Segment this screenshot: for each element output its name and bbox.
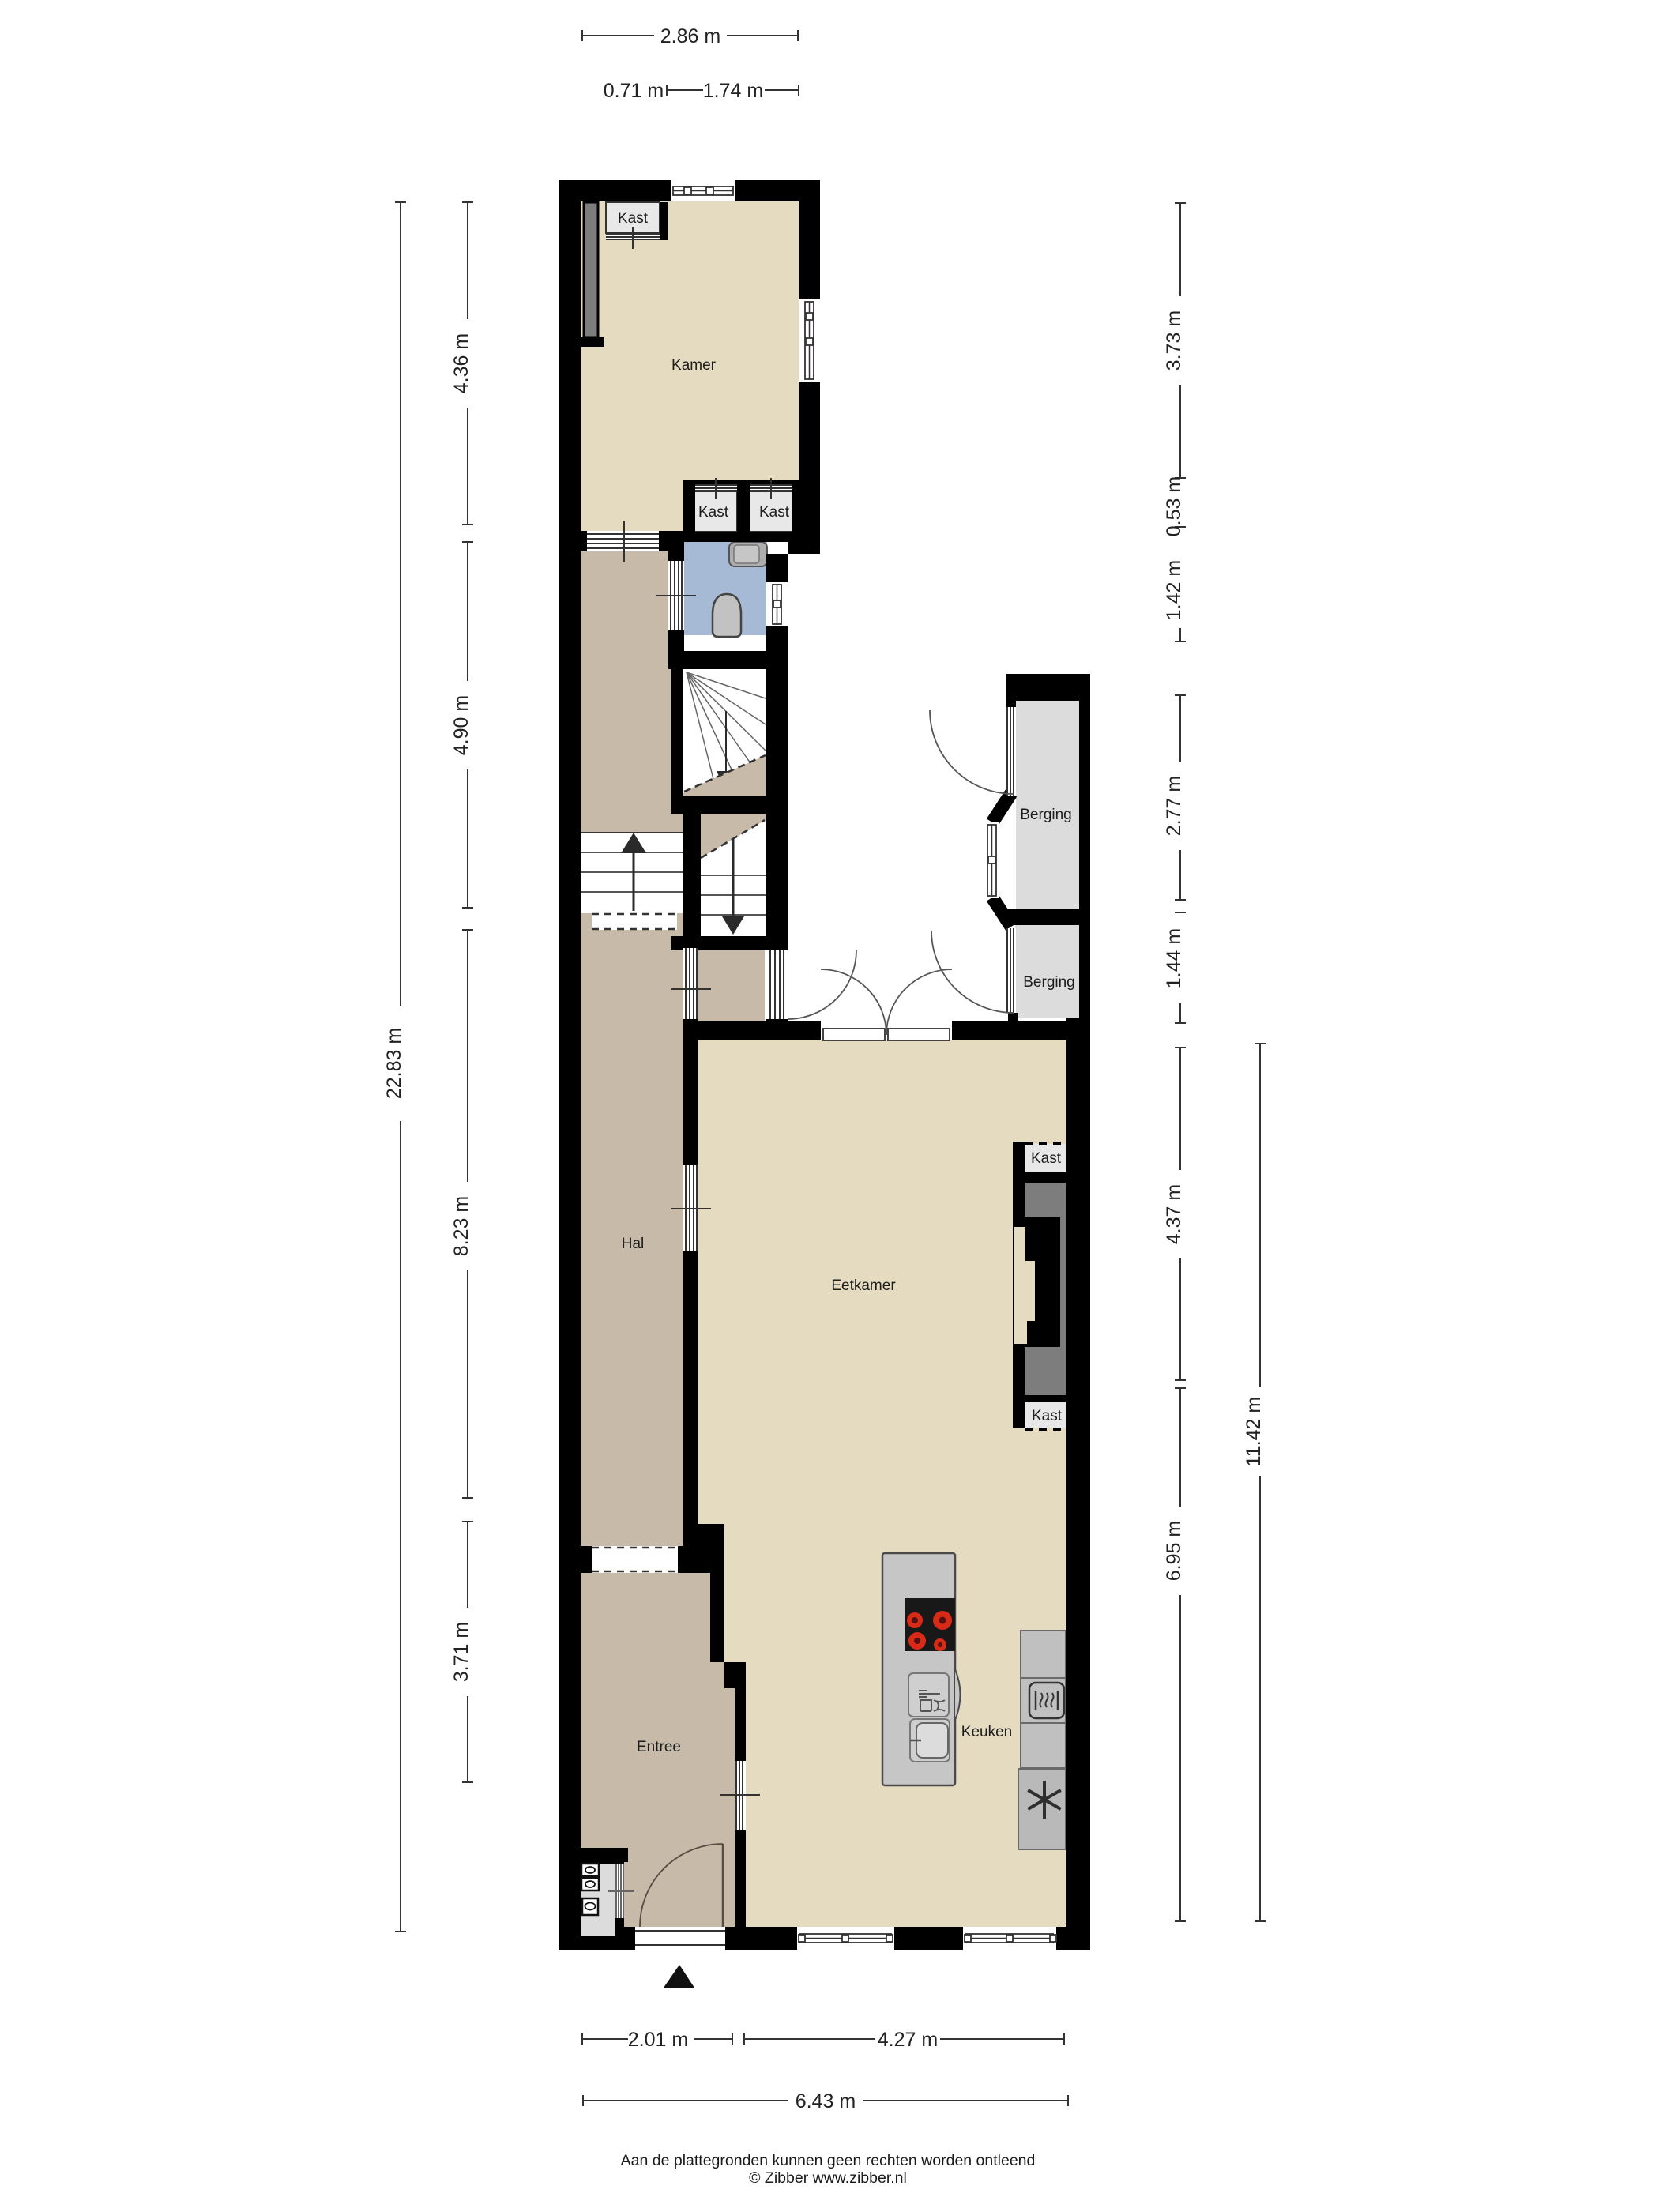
svg-text:4.27 m: 4.27 m xyxy=(878,2029,938,2051)
svg-text:0.53 m: 0.53 m xyxy=(1163,476,1185,536)
svg-text:22.83 m: 22.83 m xyxy=(383,1028,405,1099)
svg-text:Eetkamer: Eetkamer xyxy=(831,1277,896,1294)
svg-text:8.23 m: 8.23 m xyxy=(450,1196,472,1256)
svg-text:4.36 m: 4.36 m xyxy=(450,333,472,393)
svg-text:6.43 m: 6.43 m xyxy=(796,2090,856,2112)
svg-text:2.01 m: 2.01 m xyxy=(628,2029,688,2051)
svg-text:Kast: Kast xyxy=(1031,1150,1062,1167)
svg-text:© Zibber www.zibber.nl: © Zibber www.zibber.nl xyxy=(749,2169,907,2187)
svg-text:3.71 m: 3.71 m xyxy=(450,1622,472,1682)
svg-text:4.90 m: 4.90 m xyxy=(450,695,472,755)
svg-text:Kast: Kast xyxy=(759,504,790,521)
svg-text:4.37 m: 4.37 m xyxy=(1163,1184,1185,1244)
svg-text:1.42 m: 1.42 m xyxy=(1163,560,1185,620)
svg-text:Aan de plattegronden kunnen ge: Aan de plattegronden kunnen geen rechten… xyxy=(621,2152,1036,2169)
svg-text:Keuken: Keuken xyxy=(961,1724,1012,1740)
svg-text:3.73 m: 3.73 m xyxy=(1163,310,1185,371)
svg-text:2.77 m: 2.77 m xyxy=(1163,776,1185,836)
svg-text:1.74 m: 1.74 m xyxy=(703,80,763,102)
svg-text:Kast: Kast xyxy=(1032,1408,1063,1424)
svg-text:1.44 m: 1.44 m xyxy=(1163,928,1185,988)
svg-text:Entree: Entree xyxy=(637,1739,681,1755)
svg-text:Kamer: Kamer xyxy=(671,357,717,374)
svg-text:0.71 m: 0.71 m xyxy=(604,80,664,102)
svg-text:2.86 m: 2.86 m xyxy=(660,25,720,47)
svg-text:Hal: Hal xyxy=(622,1236,645,1252)
svg-text:Berging: Berging xyxy=(1023,974,1075,991)
svg-text:6.95 m: 6.95 m xyxy=(1163,1521,1185,1581)
svg-text:11.42 m: 11.42 m xyxy=(1243,1397,1265,1466)
svg-text:Kast: Kast xyxy=(698,504,729,521)
svg-text:Berging: Berging xyxy=(1020,807,1072,823)
svg-text:Kast: Kast xyxy=(618,210,649,227)
